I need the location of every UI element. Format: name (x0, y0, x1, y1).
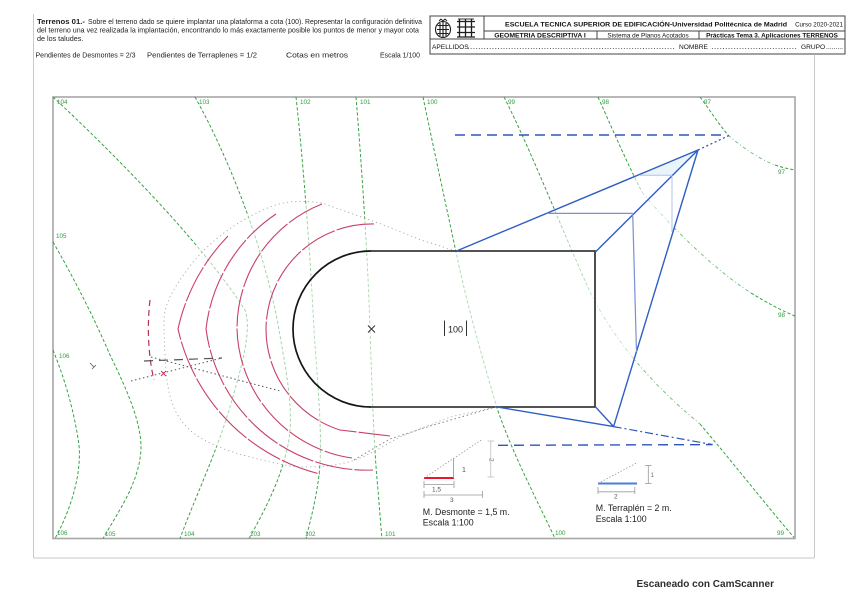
svg-text:Cotas en metros: Cotas en metros (286, 51, 348, 60)
svg-text:98: 98 (602, 99, 610, 106)
svg-text:Sistema de Planos Acotados: Sistema de Planos Acotados (607, 33, 688, 40)
svg-text:1: 1 (651, 472, 655, 479)
svg-text:100: 100 (427, 99, 438, 106)
svg-text:2: 2 (614, 494, 618, 501)
svg-text:Escala 1:100: Escala 1:100 (596, 514, 647, 524)
svg-text:..............................: ........................................… (467, 44, 675, 51)
svg-text:APELLIDOS: APELLIDOS (432, 44, 469, 51)
svg-text:98: 98 (778, 312, 786, 319)
svg-text:Escala 1/100: Escala 1/100 (380, 51, 420, 60)
svg-text:GRUPO: GRUPO (801, 44, 825, 51)
svg-text:99: 99 (777, 530, 785, 537)
svg-text:Pendientes de Desmontes = 2/3: Pendientes de Desmontes = 2/3 (36, 51, 136, 60)
svg-text:del terreno una vez realizada: del terreno una vez realizada la implant… (37, 26, 419, 35)
svg-text:Curso 2020-2021: Curso 2020-2021 (795, 22, 843, 29)
svg-text:105: 105 (56, 233, 67, 240)
svg-text:103: 103 (199, 99, 210, 106)
svg-text:Pendientes de Terraplenes = 1/: Pendientes de Terraplenes = 1/2 (147, 51, 257, 60)
svg-text:104: 104 (57, 99, 68, 106)
svg-text:de los taludes.: de los taludes. (37, 34, 83, 43)
svg-text:GEOMETRIA DESCRIPTIVA I: GEOMETRIA DESCRIPTIVA I (494, 33, 586, 40)
svg-text:..............................: ............................... (711, 44, 797, 51)
svg-text:NOMBRE: NOMBRE (679, 44, 709, 51)
svg-text:1: 1 (462, 467, 466, 474)
svg-text:101: 101 (385, 531, 396, 538)
svg-text:97: 97 (704, 99, 712, 106)
svg-text:102: 102 (305, 531, 316, 538)
svg-text:M. Desmonte = 1,5 m.: M. Desmonte = 1,5 m. (423, 507, 510, 517)
svg-text:103: 103 (250, 531, 261, 538)
svg-text:97: 97 (778, 169, 786, 176)
svg-text:M. Terraplén = 2 m.: M. Terraplén = 2 m. (596, 503, 672, 513)
svg-text:100: 100 (555, 530, 566, 537)
svg-text:.........: ......... (826, 44, 843, 51)
svg-text:1,5: 1,5 (432, 487, 441, 494)
svg-text:ESCUELA TECNICA SUPERIOR DE ED: ESCUELA TECNICA SUPERIOR DE EDIFICACIÓN-… (505, 20, 787, 29)
svg-text:3: 3 (450, 497, 454, 504)
svg-text:106: 106 (59, 353, 70, 360)
svg-text:106: 106 (57, 530, 68, 537)
svg-text:104: 104 (184, 531, 195, 538)
svg-text:101: 101 (360, 99, 371, 106)
svg-text:Escaneado con CamScanner: Escaneado con CamScanner (637, 578, 775, 590)
svg-text:Prácticas Tema 3. Aplicaciones: Prácticas Tema 3. Aplicaciones TERRENOS (706, 33, 839, 40)
svg-text:Escala 1:100: Escala 1:100 (423, 518, 474, 528)
svg-text:100: 100 (448, 325, 463, 335)
svg-text:102: 102 (300, 99, 311, 106)
svg-text:2: 2 (488, 458, 495, 462)
svg-text:99: 99 (508, 99, 516, 106)
svg-text:105: 105 (105, 531, 116, 538)
